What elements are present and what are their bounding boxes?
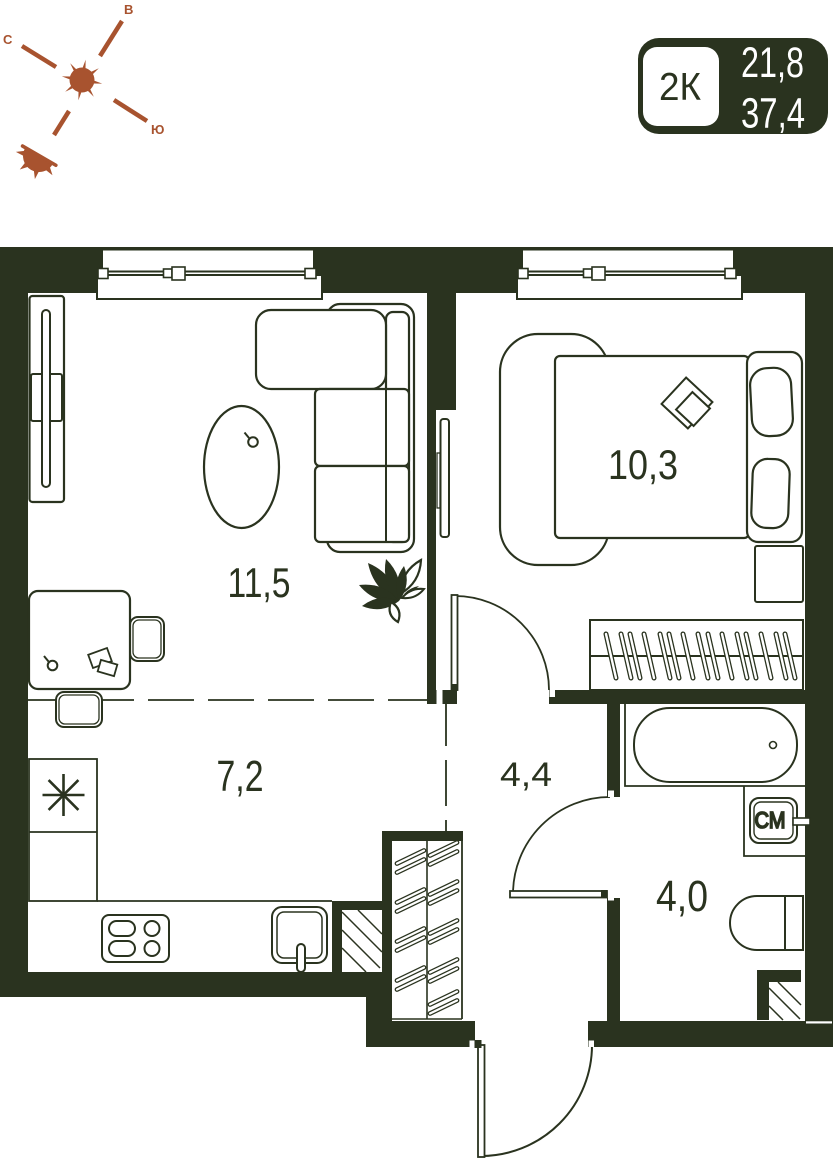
svg-text:10,3: 10,3: [608, 441, 678, 488]
svg-text:11,5: 11,5: [228, 559, 291, 606]
svg-text:СМ: СМ: [755, 807, 786, 833]
svg-text:2К: 2К: [659, 66, 701, 109]
svg-text:4,0: 4,0: [656, 872, 708, 921]
svg-text:21,8: 21,8: [741, 39, 804, 87]
svg-text:Ю: Ю: [151, 122, 164, 137]
svg-text:4,4: 4,4: [500, 756, 552, 794]
svg-text:7,2: 7,2: [217, 752, 264, 801]
svg-text:С: С: [3, 32, 13, 47]
svg-text:37,4: 37,4: [741, 90, 805, 138]
svg-text:В: В: [124, 2, 133, 17]
